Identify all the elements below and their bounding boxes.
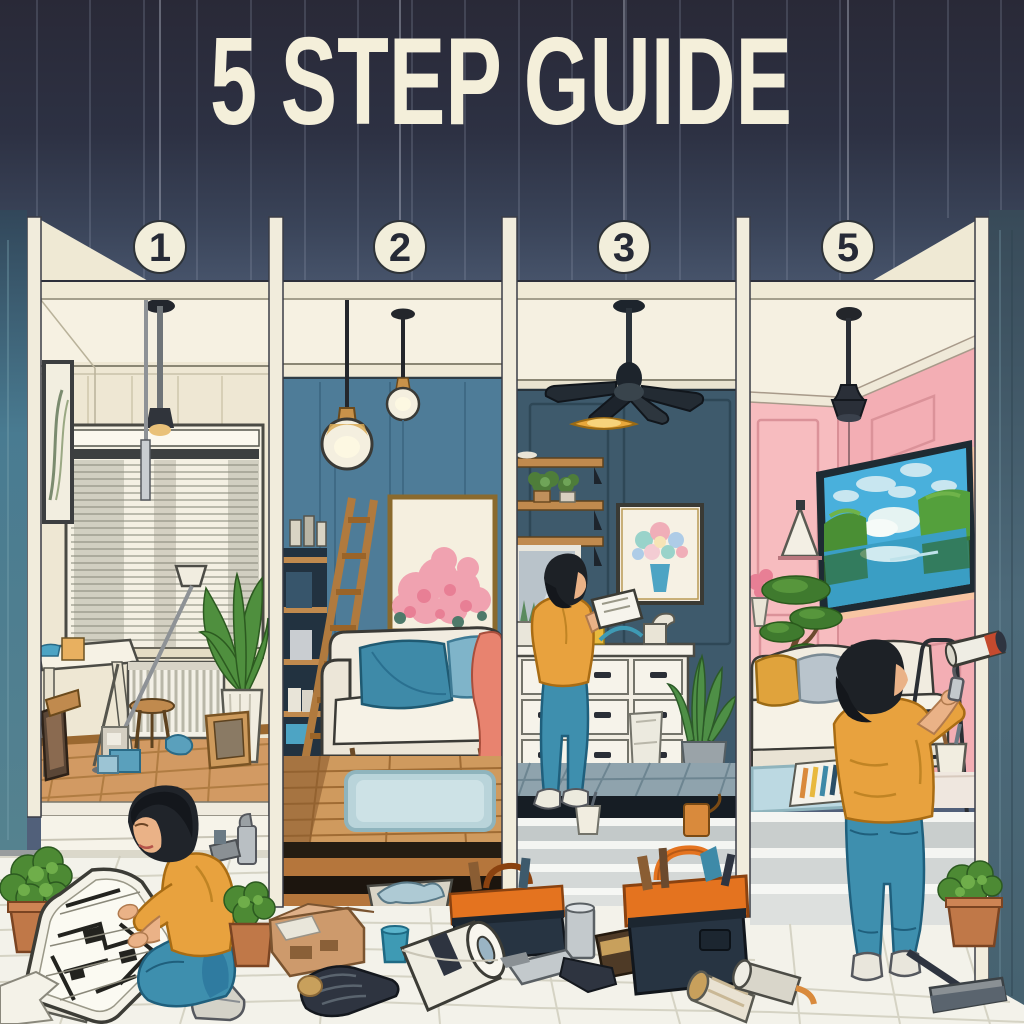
svg-text:1: 1: [149, 226, 171, 270]
svg-text:5: 5: [837, 226, 859, 270]
svg-text:3: 3: [613, 226, 635, 270]
svg-text:5 STEP GUIDE: 5 STEP GUIDE: [210, 13, 792, 151]
svg-text:2: 2: [389, 226, 411, 270]
